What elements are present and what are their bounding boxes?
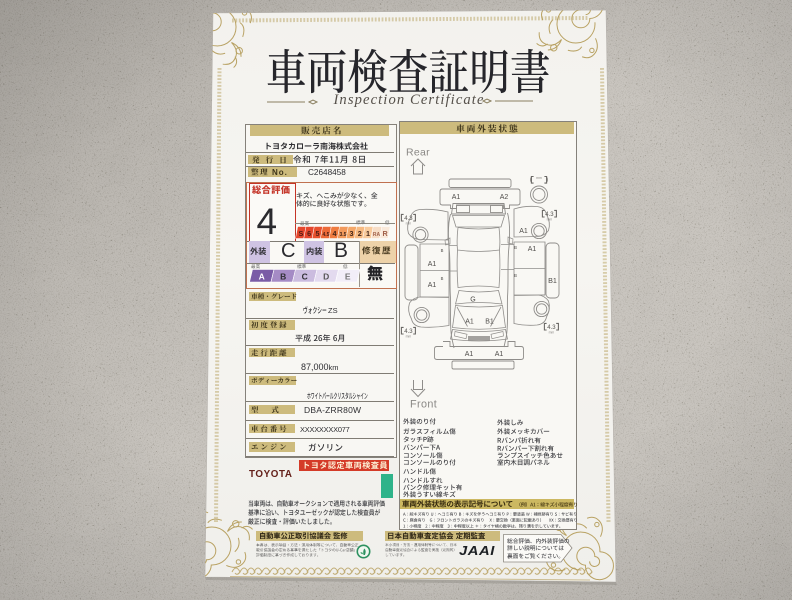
svg-text:Front: Front <box>410 399 437 411</box>
svg-text:B1: B1 <box>485 319 494 326</box>
svg-text:G: G <box>470 297 475 304</box>
svg-text:D: D <box>323 272 329 282</box>
svg-text:S: S <box>298 228 303 237</box>
svg-text:B1: B1 <box>548 276 557 285</box>
svg-text:4: 4 <box>332 228 336 237</box>
svg-text:A2: A2 <box>500 194 509 201</box>
svg-text:A1: A1 <box>495 351 504 358</box>
svg-text:B: B <box>514 245 517 250</box>
svg-text:A1: A1 <box>465 351 474 358</box>
svg-text:1: 1 <box>366 228 370 237</box>
svg-text:3: 3 <box>349 228 353 237</box>
svg-text:RA: RA <box>373 231 381 237</box>
svg-text:A1: A1 <box>528 246 537 253</box>
svg-text:2: 2 <box>358 228 362 237</box>
svg-text:mm: mm <box>549 331 555 335</box>
svg-text:A1: A1 <box>452 194 461 201</box>
svg-text:B: B <box>514 273 517 278</box>
svg-text:mm: mm <box>406 335 412 339</box>
svg-text:A1: A1 <box>519 228 528 235</box>
svg-text:B: B <box>441 276 444 281</box>
svg-text:A: A <box>259 272 265 282</box>
svg-text:R: R <box>382 228 388 237</box>
svg-text:Rear: Rear <box>406 147 430 159</box>
svg-text:mm: mm <box>406 222 412 226</box>
svg-text:A1: A1 <box>465 319 474 326</box>
svg-text:B: B <box>280 272 286 282</box>
svg-text:5: 5 <box>315 228 319 237</box>
svg-text:mm: mm <box>536 176 542 180</box>
svg-text:3.5: 3.5 <box>339 231 346 237</box>
svg-text:C: C <box>302 272 308 282</box>
svg-text:B: B <box>441 248 444 253</box>
svg-text:A1: A1 <box>428 261 437 268</box>
svg-text:A1: A1 <box>428 282 437 289</box>
svg-text:E: E <box>345 272 351 282</box>
svg-text:4.5: 4.5 <box>322 231 329 237</box>
svg-text:mm: mm <box>547 218 553 222</box>
svg-text:6: 6 <box>307 228 311 237</box>
